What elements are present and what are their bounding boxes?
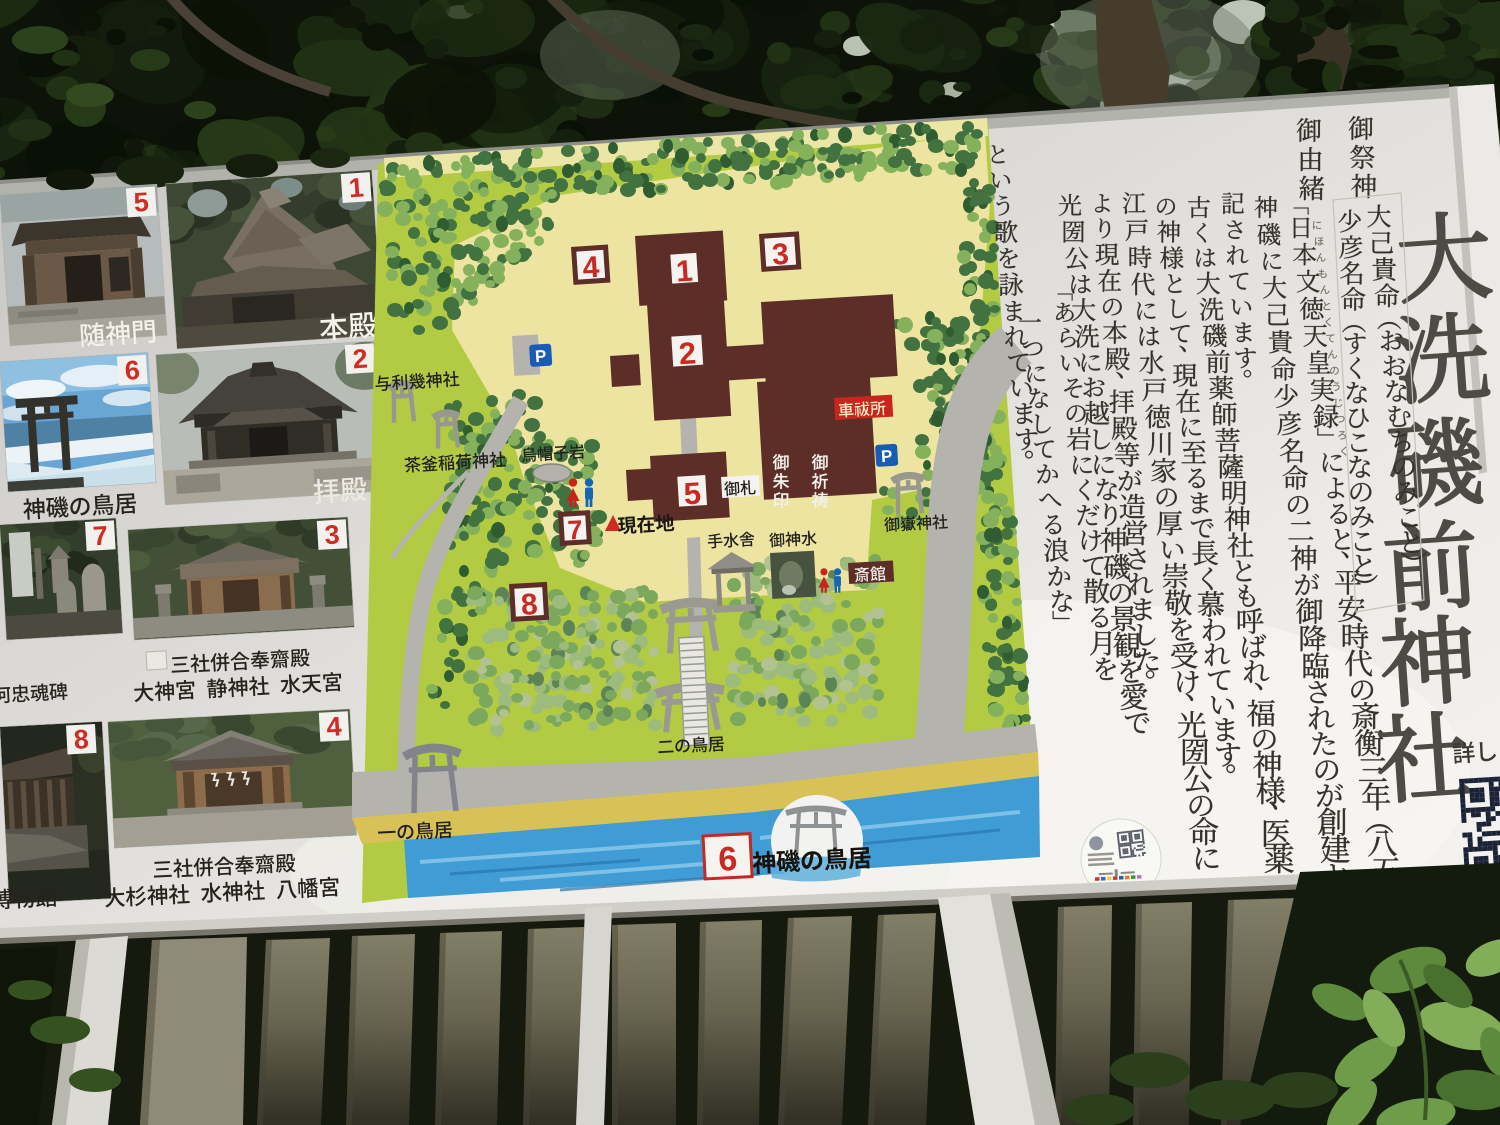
- svg-text:7: 7: [92, 521, 109, 552]
- svg-text:8: 8: [73, 724, 90, 755]
- svg-text:5: 5: [683, 476, 702, 512]
- svg-text:6: 6: [717, 840, 738, 879]
- svg-text:P: P: [880, 447, 892, 467]
- svg-text:1: 1: [675, 255, 694, 289]
- svg-text:8: 8: [520, 588, 539, 622]
- svg-text:P: P: [534, 347, 547, 367]
- svg-text:2: 2: [352, 343, 369, 374]
- svg-text:3: 3: [324, 519, 341, 550]
- svg-text:6: 6: [124, 355, 141, 386]
- svg-text:4: 4: [582, 251, 601, 285]
- svg-text:4: 4: [326, 711, 343, 742]
- svg-text:5: 5: [133, 187, 150, 218]
- svg-text:1: 1: [348, 172, 365, 203]
- svg-text:3: 3: [771, 238, 790, 272]
- svg-text:7: 7: [567, 515, 584, 546]
- svg-text:2: 2: [678, 335, 697, 371]
